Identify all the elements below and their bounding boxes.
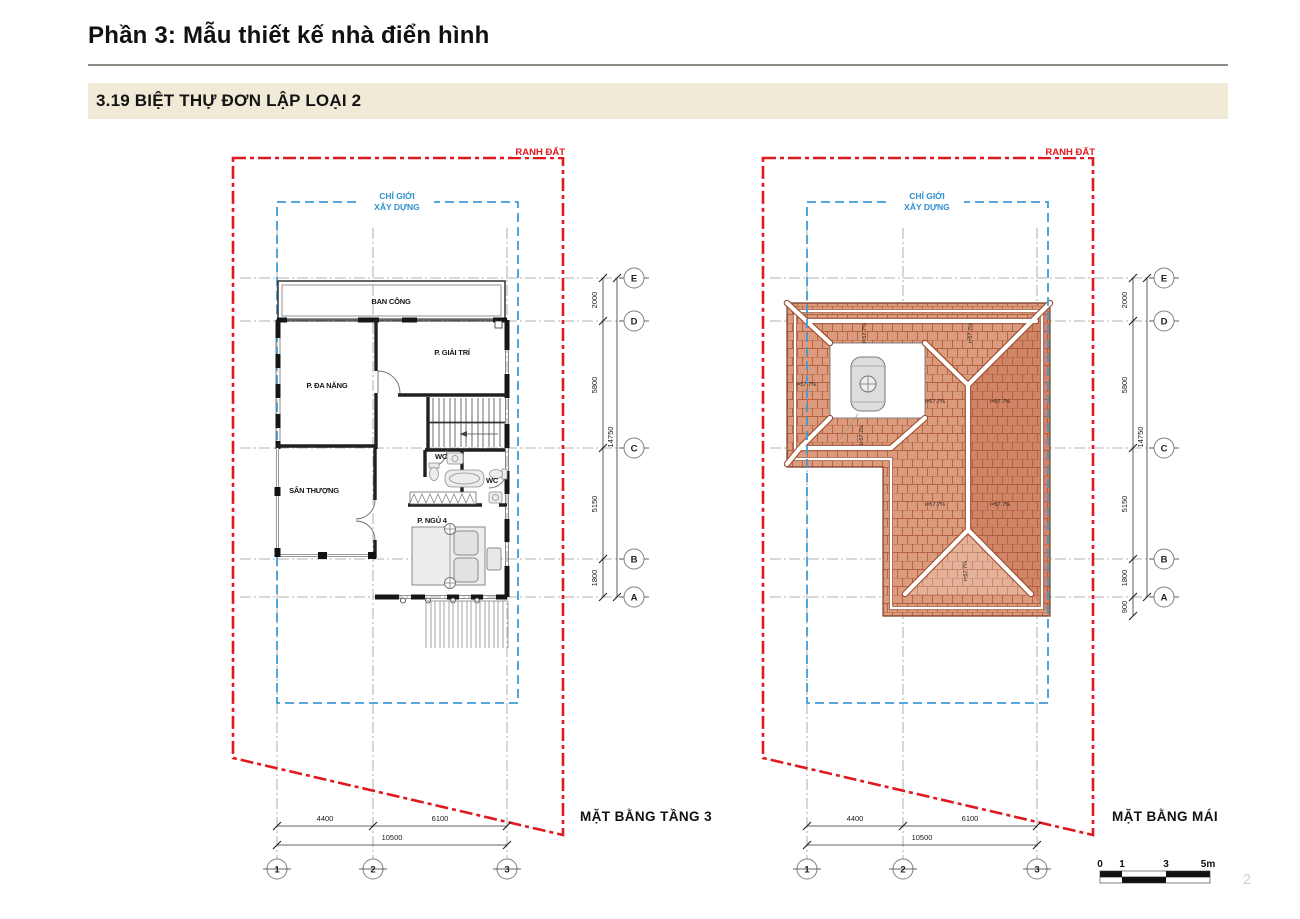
build-boundary-floor [277, 202, 518, 703]
interior-walls [277, 320, 507, 558]
floor-plan-title: MẶT BẰNG TẦNG 3 [580, 809, 712, 824]
grid-bubble-C: C [631, 444, 638, 455]
grid-bubble-B: B [631, 555, 638, 566]
roof-grid-bubble-A: A [1161, 593, 1168, 604]
scale-tick-1: 1 [1119, 859, 1125, 870]
roof-dim-1-2: 4400 [847, 814, 864, 823]
dim-total-h: 10500 [382, 833, 403, 842]
scale-bar: 0 1 3 5m [1097, 859, 1215, 883]
build-line-label-1: CHỈ GIỚI [379, 190, 415, 201]
roof-plan: RANH ĐẤT i=5 [763, 144, 1218, 879]
roof-dim-total-v: 14750 [1136, 427, 1145, 448]
land-boundary-label: RANH ĐẤT [515, 147, 565, 158]
dim-c-b: 5150 [590, 496, 599, 513]
floor-bottom-dims: 4400 6100 10500 1 2 3 [263, 814, 521, 879]
roof-grid-bubble-2: 2 [900, 865, 905, 876]
build-line-label-1-roof: CHỈ GIỚI [909, 190, 945, 201]
roof-plan-title: MẶT BẰNG MÁI [1112, 809, 1218, 824]
scale-tick-0: 0 [1097, 859, 1103, 870]
page-number: 2 [1243, 871, 1251, 888]
roof-dim-c-b: 5150 [1120, 496, 1129, 513]
roof-grid-bubble-3: 3 [1034, 865, 1039, 876]
dim-1-2: 4400 [317, 814, 334, 823]
scale-tick-3: 3 [1163, 859, 1169, 870]
room-label-balcony: BAN CÔNG [371, 297, 411, 306]
slope-label: i=57.7% [990, 399, 1010, 405]
roof-grid-bubble-E: E [1161, 274, 1167, 285]
roof-dim-e-d: 2000 [1120, 292, 1129, 309]
roof-body [787, 303, 1050, 616]
build-line-label-2: XÂY DỰNG [374, 201, 420, 212]
floor-plan-tang3: RANH ĐẤT CHỈ GIỚI XÂY DỰNG [233, 144, 712, 879]
room-label-bedroom: P. NGỦ 4 [417, 516, 448, 525]
dim-b-a: 1800 [590, 570, 599, 587]
terrace-parapet [277, 448, 375, 557]
roof-grid-bubble-C: C [1161, 444, 1168, 455]
grid-bubble-3: 3 [504, 865, 509, 876]
roof-grid-bubble-D: D [1161, 317, 1168, 328]
roof-dim-2-3: 6100 [962, 814, 979, 823]
room-label-terrace: SÂN THƯỢNG [289, 486, 339, 495]
room-label-entertainment: P. GIẢI TRÍ [434, 348, 471, 357]
dim-2-3: 6100 [432, 814, 449, 823]
water-tank [851, 357, 885, 411]
pergola-louvers [426, 601, 508, 648]
terrace-posts [275, 487, 377, 559]
slope-label: i=57.7% [859, 425, 865, 445]
room-label-multipurpose: P. ĐA NĂNG [307, 381, 348, 390]
slope-label: i=57.7% [862, 323, 868, 343]
plans-drawing: RANH ĐẤT CHỈ GIỚI XÂY DỰNG [0, 0, 1300, 919]
document-page: Phần 3: Mẫu thiết kế nhà điển hình 3.19 … [0, 0, 1300, 919]
roof-grid-bubble-1: 1 [804, 865, 810, 876]
dim-e-d: 2000 [590, 292, 599, 309]
wardrobe [410, 492, 476, 504]
grid-bubble-D: D [631, 317, 638, 328]
land-boundary-floor [233, 158, 563, 835]
slope-label: i=57.7% [990, 502, 1010, 508]
build-line-label-2-roof: XÂY DỰNG [904, 201, 950, 212]
roof-dim-total-h: 10500 [912, 833, 933, 842]
grid-bubble-2: 2 [370, 865, 375, 876]
dim-total-v: 14750 [606, 427, 615, 448]
floor-right-dims: 2000 5800 5150 1800 14750 E D C B A [590, 268, 649, 607]
section-flag [495, 321, 502, 328]
dim-d-c: 5800 [590, 377, 599, 394]
roof-bottom-dims: 4400 6100 10500 1 2 3 [793, 814, 1051, 879]
slope-label: i=57.7% [963, 561, 969, 581]
roof-dim-b-a: 1800 [1120, 570, 1129, 587]
grid-bubble-A: A [631, 593, 638, 604]
slope-label: i=57.7% [796, 382, 816, 388]
slope-label: i=57.7% [968, 323, 974, 343]
grid-bubble-1: 1 [274, 865, 280, 876]
roof-right-dims: 2000 5800 5150 1800 900 14750 E D C B A [1120, 268, 1179, 620]
roof-dim-d-c: 5800 [1120, 377, 1129, 394]
grid-bubble-E: E [631, 274, 637, 285]
slope-label: i=57.7% [925, 399, 945, 405]
roof-dim-a-eave: 900 [1120, 601, 1129, 614]
slope-label: i=57.7% [925, 502, 945, 508]
staircase [429, 398, 505, 447]
room-label-wc1: WC [435, 452, 448, 461]
bed [412, 524, 501, 589]
room-label-wc2: WC [486, 476, 499, 485]
scale-tick-5m: 5m [1201, 859, 1216, 870]
land-boundary-label-roof: RANH ĐẤT [1045, 147, 1095, 158]
roof-grid-bubble-B: B [1161, 555, 1168, 566]
